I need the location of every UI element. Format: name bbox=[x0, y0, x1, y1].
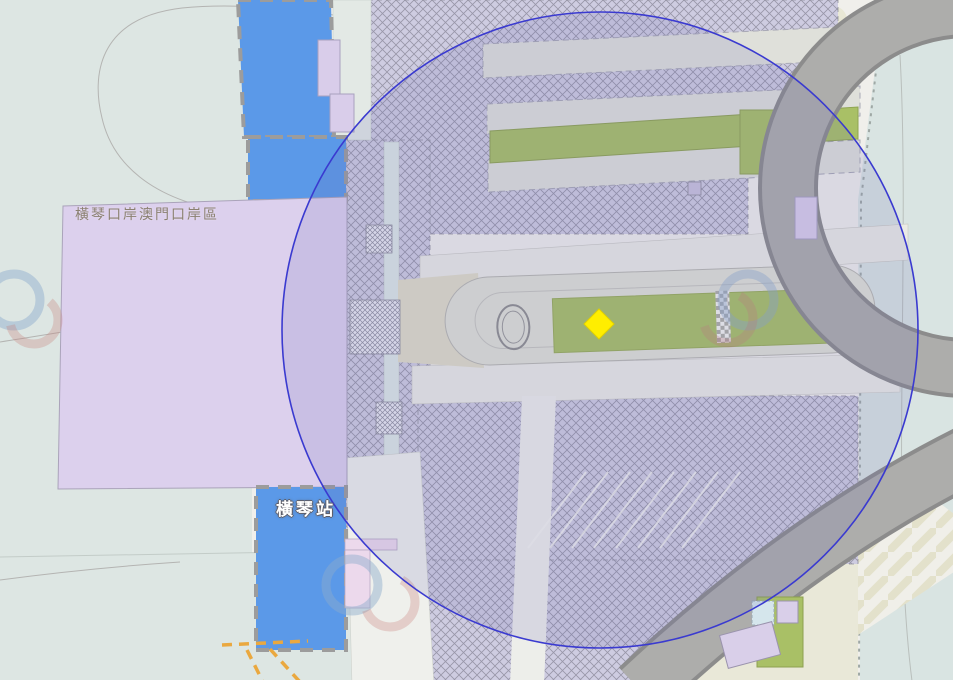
map-layers bbox=[0, 0, 953, 680]
map-canvas[interactable]: 橫琴口岸澳門口岸區 橫琴站 bbox=[0, 0, 953, 680]
